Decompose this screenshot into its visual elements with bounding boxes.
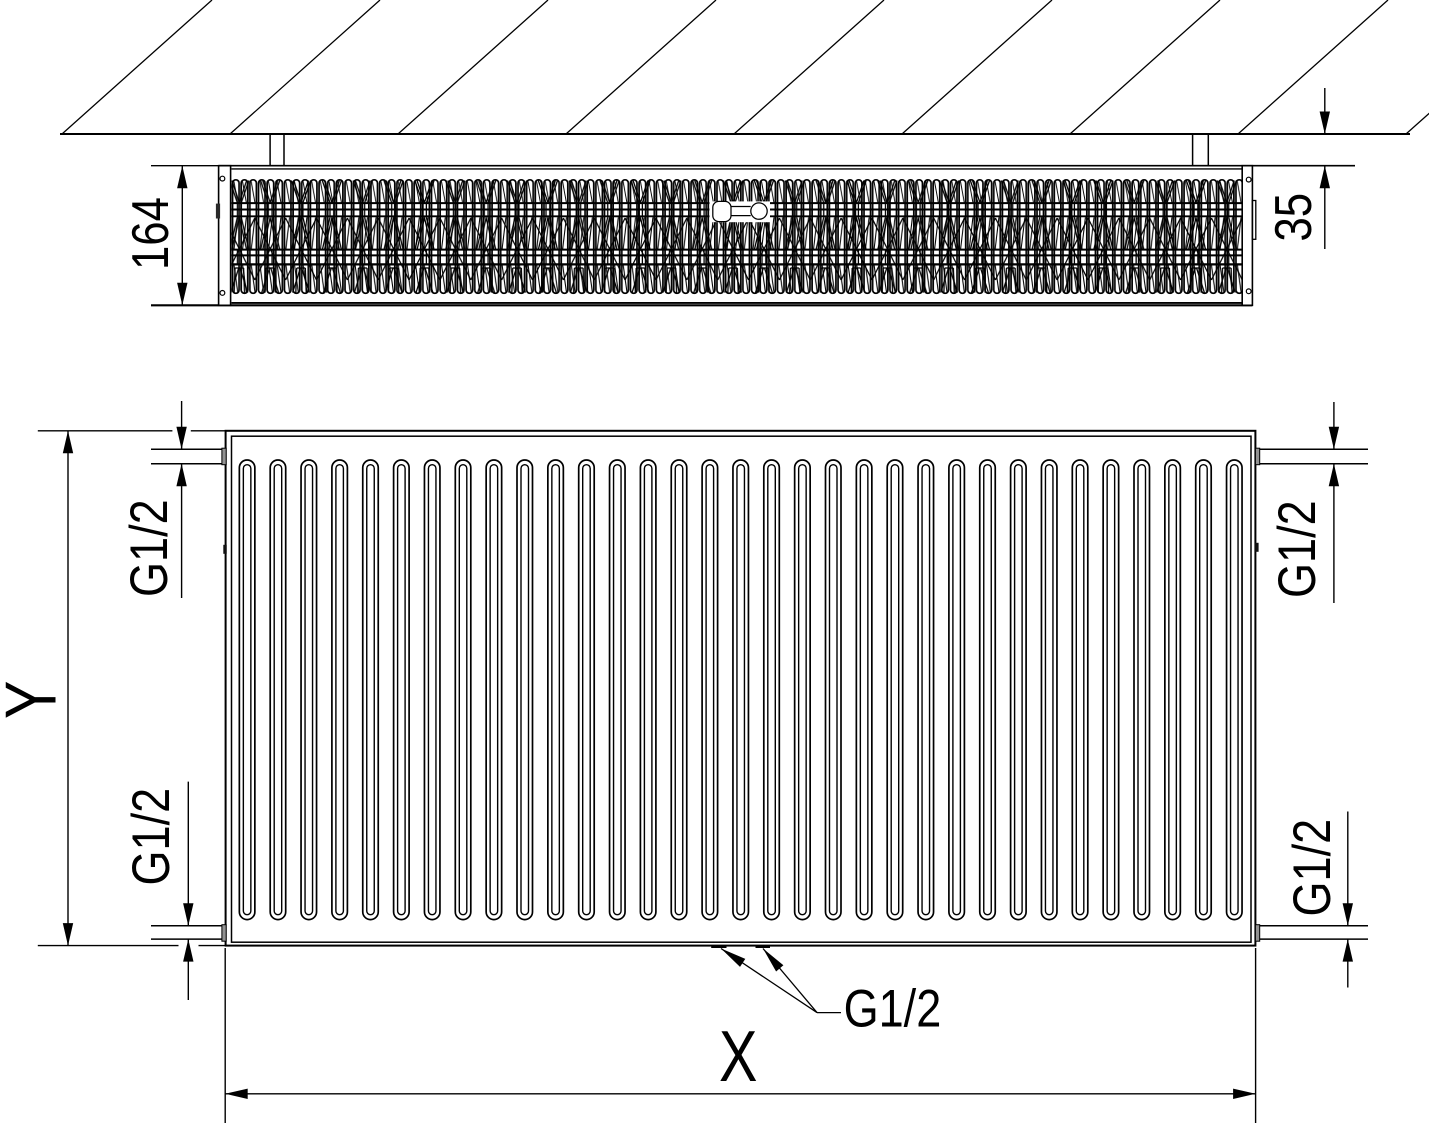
svg-text:X: X [719, 1016, 757, 1097]
svg-text:G1/2: G1/2 [844, 979, 942, 1038]
svg-text:35: 35 [1266, 193, 1323, 242]
svg-text:G1/2: G1/2 [1283, 819, 1342, 917]
svg-text:G1/2: G1/2 [1268, 500, 1327, 598]
svg-text:Y: Y [0, 681, 71, 719]
svg-text:G1/2: G1/2 [120, 499, 179, 597]
svg-text:G1/2: G1/2 [122, 788, 181, 886]
svg-text:164: 164 [123, 197, 180, 270]
